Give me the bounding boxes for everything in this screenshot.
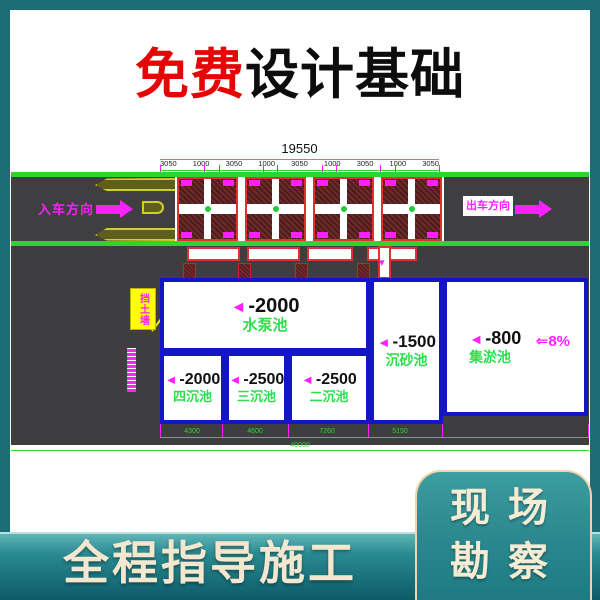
pool-third-settling: ◄-2500 三沉池: [225, 352, 288, 424]
dim-tick: [160, 424, 161, 438]
exit-arrow-icon: [515, 200, 552, 218]
panel-line-1: 现场: [417, 488, 590, 528]
dim-segment: 3050: [357, 160, 374, 168]
road: 入车方向 出车方向: [11, 172, 589, 246]
dim-segment: 1000: [389, 160, 406, 168]
pool-depth: -2500: [243, 371, 284, 388]
title-rest: 设计基础: [245, 45, 465, 105]
dim-tick: [442, 424, 443, 438]
dim-segment: 1000: [258, 160, 275, 168]
slope-annotation: ⇐8%: [536, 332, 570, 350]
trench-box: [367, 247, 417, 261]
footer-banner: 全程指导施工: [0, 540, 420, 586]
traffic-island: [142, 201, 164, 214]
title-highlight: 免费: [135, 45, 245, 105]
wall-callout: 挡土墙: [130, 288, 156, 330]
depth-marker-icon: ◄: [229, 372, 242, 387]
pool-name: 沉砂池: [386, 352, 428, 369]
pool-grit: ◄-1500 沉砂池: [370, 278, 443, 424]
dim-total-label: 19550: [160, 141, 439, 156]
pool-depth: -2000: [179, 371, 220, 388]
side-panel: 现场 勘察: [415, 470, 592, 600]
dim-segment: 3050: [291, 160, 308, 168]
dim-segment: 3050: [160, 160, 177, 168]
dim-segment: 5150: [392, 428, 408, 435]
grid-bay: [177, 177, 238, 241]
traffic-island: [95, 178, 179, 191]
grid-bay: [245, 177, 306, 241]
dim-segment: 7260: [319, 428, 335, 435]
trench-box: [307, 247, 353, 261]
pool-name: 二沉池: [309, 389, 348, 405]
exit-direction-label: 出车方向: [463, 196, 513, 216]
dim-segment-line: [160, 170, 439, 171]
slope-value: 8%: [548, 333, 570, 350]
depth-marker-icon: ◄: [469, 332, 483, 348]
dim-segment: 4300: [184, 428, 200, 435]
dim-tick: [368, 424, 369, 438]
dim-segment-labels: 3050 1000 3050 1000 3050 1000 3050 1000 …: [160, 160, 439, 168]
dim-segment: 4600: [247, 428, 263, 435]
pool-pump: ◄-2000 水泵池: [160, 278, 370, 352]
grid-bay: [313, 177, 374, 241]
dim-tick: [222, 424, 223, 438]
trench-box: [187, 247, 240, 261]
flow-down-arrow-icon: ▾: [379, 258, 385, 269]
slope-arrow-icon: ⇐: [536, 333, 549, 350]
pool-name: 三沉池: [237, 389, 276, 405]
depth-marker-icon: ◄: [301, 372, 314, 387]
pool-depth: -800: [485, 328, 521, 348]
pool-name: 水泵池: [242, 317, 287, 335]
dim-bottom-line: [160, 437, 588, 438]
panel-line-2: 勘察: [417, 542, 590, 582]
dim-segment: 3050: [422, 160, 439, 168]
page-title: 免费设计基础: [0, 48, 600, 102]
pool-depth: -1500: [392, 332, 435, 351]
pool-second-settling: ◄-2500 二沉池: [288, 352, 370, 424]
retaining-wall-hatch: [127, 348, 136, 392]
entry-arrow-icon: [96, 200, 133, 218]
pool-depth: -2500: [316, 371, 357, 388]
depth-marker-icon: ◄: [165, 372, 178, 387]
traffic-island: [95, 228, 179, 241]
dim-segment: 3050: [226, 160, 243, 168]
dim-overall-line: [11, 450, 589, 451]
dim-tick: [588, 424, 589, 438]
wall-callout-label: 挡土墙: [136, 293, 151, 326]
entry-direction-label: 入车方向: [38, 199, 94, 218]
cad-drawing: 19550 3050 1000 3050 1000 3050 1000 3050…: [11, 140, 589, 460]
pool-depth: -2000: [248, 295, 299, 317]
wash-platform-grid: [175, 177, 444, 241]
pool-name: 集淤池: [469, 349, 511, 366]
dim-bottom-total: 40000: [11, 442, 589, 449]
dim-tick: [288, 424, 289, 438]
depth-marker-icon: ◄: [231, 299, 247, 316]
grid-bay: [381, 177, 442, 241]
pool-fourth-settling: ◄-2000 四沉池: [160, 352, 225, 424]
trench-box: [247, 247, 300, 261]
dim-segment: 1000: [193, 160, 210, 168]
pool-name: 四沉池: [173, 389, 212, 405]
depth-marker-icon: ◄: [377, 335, 390, 350]
dim-segment: 1000: [324, 160, 341, 168]
pool-silt: ◄-800 集淤池 ⇐8%: [443, 278, 588, 416]
